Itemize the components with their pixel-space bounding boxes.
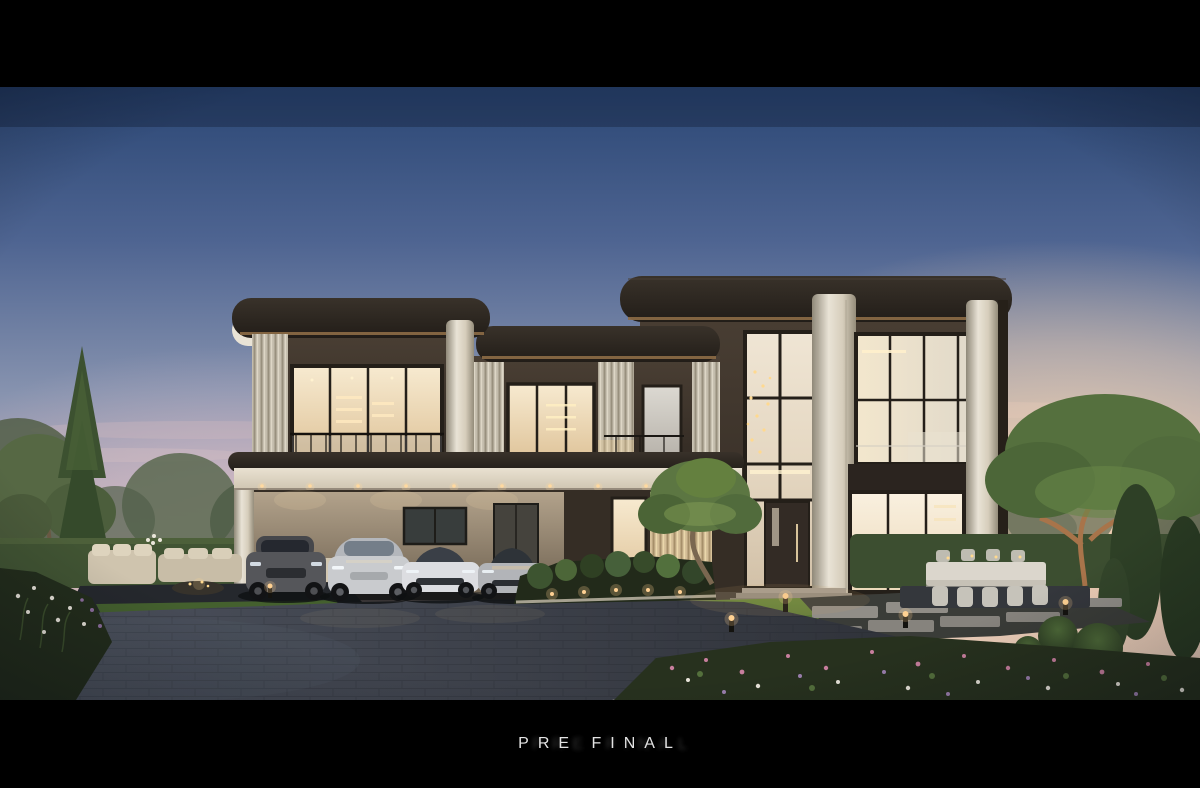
vignette [0, 87, 1200, 700]
letterbox-top [0, 0, 1200, 87]
rendering-photo [0, 87, 1200, 700]
caption-text: PRE FINAL [518, 735, 682, 752]
caption-bar: PRE FINAL PRE FINAL [0, 700, 1200, 788]
rendering-frame: PRE FINAL PRE FINAL [0, 0, 1200, 788]
